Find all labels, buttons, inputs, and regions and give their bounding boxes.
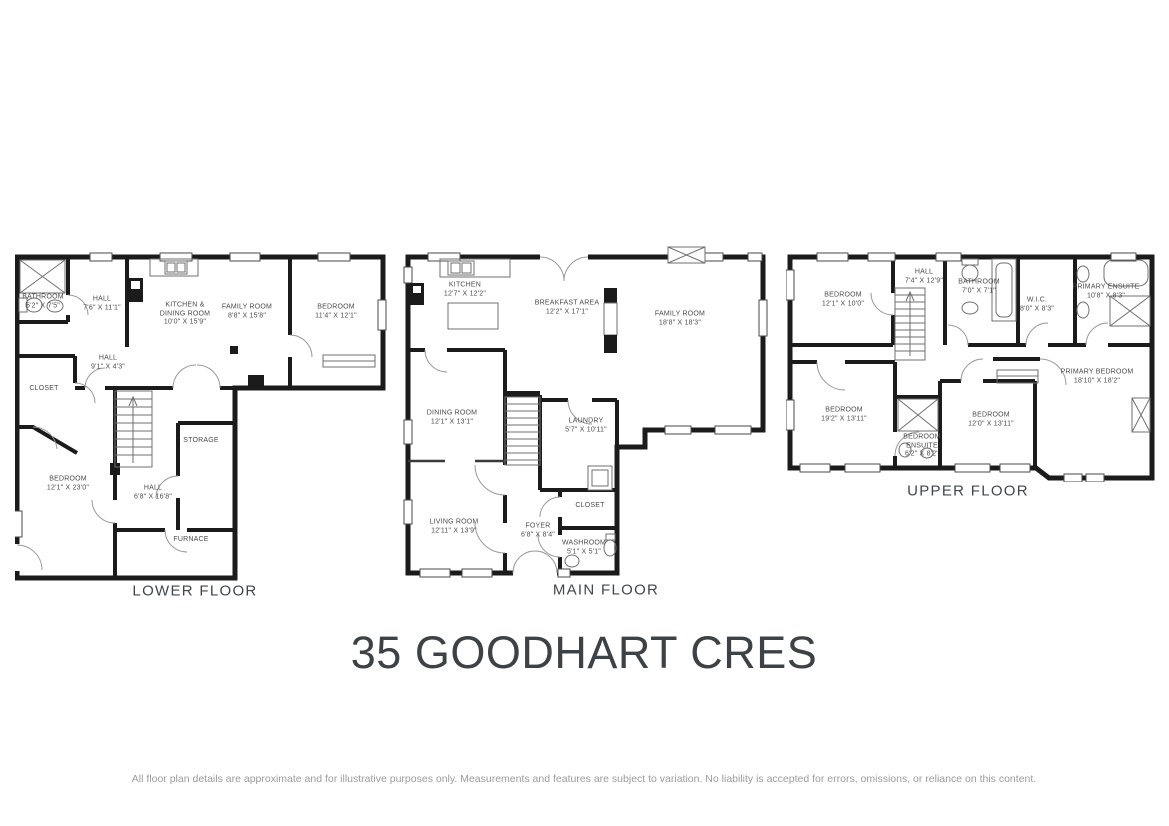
room-label-foyer: FOYER6'8" X 8'4" [521,523,555,540]
room-label-bedroom-bl: BEDROOM19'2" X 13'11" [821,407,867,424]
room-label-wic: W.I.C.8'0" X 8'3" [1020,297,1054,314]
room-label-bathroom: BATHROOM7'0" X 7'1" [956,279,1002,296]
room-label-storage: STORAGE [183,437,219,446]
ensuite-sink-icon [1077,266,1089,282]
stove-icon [128,278,143,302]
disclaimer-text: All floor plan details are approximate a… [132,773,1036,785]
stairs-icon [115,391,152,467]
stairs-icon [895,288,925,360]
ensuite-shower-icon [1110,296,1150,326]
sink-icon [565,555,579,567]
fireplace-icon [668,247,705,263]
room-label-bedroom-center: BEDROOM12'0" X 13'11" [968,412,1014,429]
room-label-closet: CLOSET [575,502,604,511]
washer-icon [588,466,612,490]
room-label-bathroom: BATHROOM5'2" X 7'5" [22,294,64,311]
sink-icon [962,302,978,314]
room-label-closet: CLOSET [29,385,58,394]
room-label-kitchen: KITCHEN12'7" X 12'2" [444,282,486,299]
bedroom-ensuite-shower-icon [898,399,938,431]
floor-label-upper: UPPER FLOOR [907,483,1029,500]
room-label-bedroom-right: BEDROOM11'4" X 12'1" [315,304,357,321]
room-label-primary-ensuite: PRIMARY ENSUITE10'8" X 8'3" [1073,284,1140,301]
kitchen-counter [150,259,198,276]
room-label-hall-mid: HALL9'1" X 4'3" [91,355,125,372]
shower-icon [20,260,65,293]
room-label-primary-bedroom: PRIMARY BEDROOM18'10" X 18'2" [1061,369,1134,386]
room-label-furnace: FURNACE [173,536,208,545]
ensuite-sink-icon [1077,302,1089,318]
room-label-hall: HALL7'4" X 12'9" [905,269,943,286]
room-label-laundry: LAUNDRY5'7" X 10'11" [565,418,607,435]
room-label-hall-lower: HALL6'8" X 16'8" [134,485,172,502]
lower-floor-plan: BATHROOM5'2" X 7'5" HALL7'6" X 11'1" KIT… [15,251,387,583]
room-label-bedroom-lower: BEDROOM12'1" X 23'0" [47,476,89,493]
upper-floor-plan: BEDROOM12'1" X 10'0" HALL7'4" X 12'9" BA… [786,250,1158,482]
page-title: 35 GOODHART CRES [351,627,817,679]
stairs-icon [505,397,540,465]
room-label-dining-room: DINING ROOM12'1" X 13'1" [427,410,477,427]
floor-plan-page: BATHROOM5'2" X 7'5" HALL7'6" X 11'1" KIT… [0,0,1169,826]
fireplace-icon [1132,398,1150,432]
stove-icon [410,283,424,305]
main-floor-plan: KITCHEN12'7" X 12'2" BREAKFAST AREA12'2"… [400,245,768,580]
room-label-bedroom-tl: BEDROOM12'1" X 10'0" [822,292,864,309]
room-label-family-room: FAMILY ROOM8'8" X 15'8" [221,304,273,321]
floor-label-lower: LOWER FLOOR [132,583,257,600]
room-label-hall-upper: HALL7'6" X 11'1" [83,296,121,313]
bedroom-closet-shelf [323,355,375,367]
ensuite-tub-icon [1104,260,1148,286]
room-label-living-room: LIVING ROOM12'11" X 13'9" [430,519,479,536]
room-label-kitchen-dining: KITCHEN & DINING ROOM10'0" X 15'9" [156,301,214,327]
room-label-family-room: FAMILY ROOM18'8" X 18'3" [655,311,705,328]
room-label-bedroom-ensuite: BEDROOM ENSUITE6'2" X 8'2" [902,433,942,459]
room-label-breakfast-area: BREAKFAST AREA12'2" X 17'1" [535,300,600,317]
floor-label-main: MAIN FLOOR [553,582,659,599]
room-label-washroom: WASHROOM5'1" X 5'1" [561,540,607,557]
